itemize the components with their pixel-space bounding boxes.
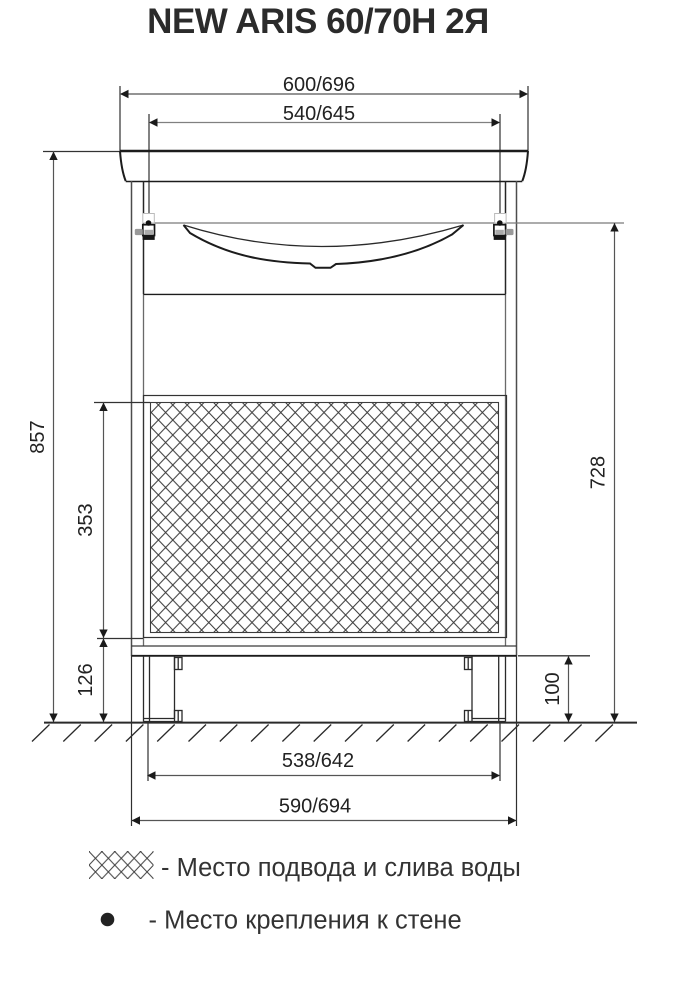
svg-text:NEW ARIS 60/70Н 2Я: NEW ARIS 60/70Н 2Я — [147, 2, 489, 41]
svg-text:- Место подвода и слива воды: - Место подвода и слива воды — [161, 854, 521, 882]
svg-text:353: 353 — [75, 503, 97, 536]
svg-text:590/694: 590/694 — [279, 796, 351, 818]
svg-text:540/645: 540/645 — [283, 103, 355, 125]
svg-text:126: 126 — [75, 663, 97, 696]
svg-text:100: 100 — [542, 672, 564, 705]
svg-text:538/642: 538/642 — [282, 750, 354, 772]
svg-text:600/696: 600/696 — [283, 74, 355, 96]
svg-text:- Место крепления к стене: - Место крепления к стене — [149, 907, 462, 935]
svg-text:857: 857 — [27, 420, 49, 453]
svg-text:728: 728 — [588, 456, 610, 489]
